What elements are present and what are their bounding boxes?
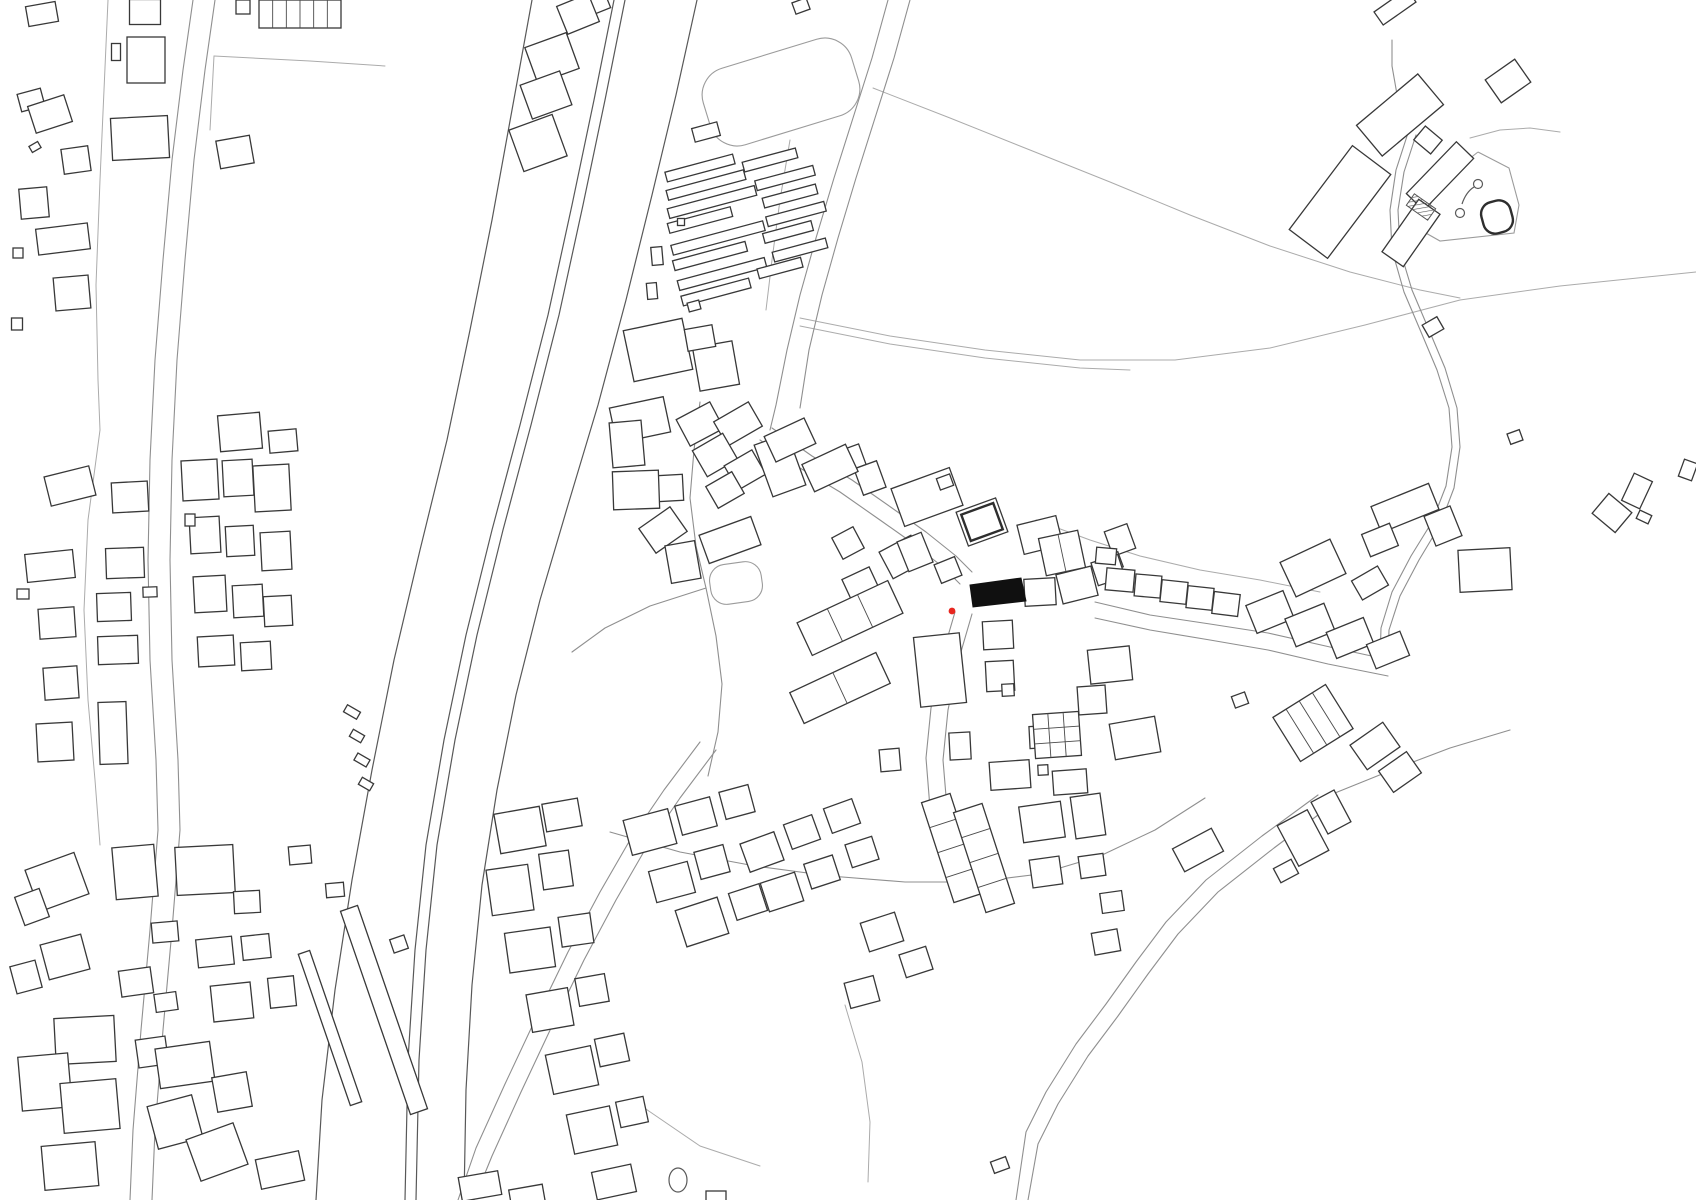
building-footprint: [358, 777, 373, 790]
building-footprint: [17, 589, 29, 599]
building-footprint: [1289, 146, 1391, 259]
building-footprint: [143, 587, 157, 597]
building-footprint: [509, 114, 567, 171]
building-footprint: [36, 722, 74, 762]
building-footprint: [1038, 765, 1049, 776]
building-footprint: [879, 748, 901, 772]
building-footprint: [1105, 568, 1135, 592]
building-footprint: [860, 912, 904, 952]
building-footprint: [509, 1184, 546, 1200]
building-footprint: [240, 641, 271, 671]
building-footprint: [989, 760, 1031, 791]
building-footprint: [61, 146, 91, 175]
river-bank-line: [416, 0, 625, 1200]
building-footprint: [665, 541, 701, 584]
building-footprint: [486, 864, 534, 915]
building-footprint: [1273, 859, 1298, 883]
building-footprint: [60, 1079, 120, 1134]
building-footprint: [832, 527, 864, 559]
building-footprint: [1352, 566, 1389, 600]
pond-outline: [669, 1168, 687, 1192]
building-footprint: [44, 466, 96, 506]
building-footprint: [1087, 646, 1132, 684]
building-footprint: [646, 283, 657, 300]
building-footprint: [268, 976, 297, 1009]
curved-wall-arc: [1462, 187, 1474, 204]
building-footprint: [10, 960, 42, 994]
building-footprint: [494, 806, 546, 853]
building-footprint: [740, 832, 784, 873]
building-footprint: [111, 481, 149, 513]
building-footprint: [40, 934, 90, 980]
building-footprint: [236, 0, 250, 14]
terraced-building: [1038, 530, 1085, 575]
building-footprint: [130, 0, 161, 25]
building-footprint: [678, 219, 685, 226]
site-plan-map: [0, 0, 1696, 1200]
building-footprint: [1374, 0, 1416, 25]
building-footprint: [1019, 801, 1066, 842]
building-footprint: [804, 855, 841, 889]
building-footprint: [255, 1151, 304, 1189]
courtyard-outline: [707, 560, 764, 607]
building-footprint: [684, 325, 715, 352]
building-footprint: [268, 429, 298, 453]
building-footprint: [233, 890, 260, 913]
round-structure: [1478, 198, 1515, 237]
terraced-building: [1033, 711, 1082, 758]
building-footprint: [675, 797, 718, 835]
building-footprint: [105, 547, 144, 578]
building-footprint: [1077, 685, 1107, 715]
building-footprint: [1285, 603, 1335, 647]
building-footprint: [520, 71, 572, 119]
building-footprint: [1507, 430, 1523, 445]
building-footprint: [110, 116, 169, 161]
building-footprint: [390, 935, 409, 953]
building-footprint: [845, 836, 879, 867]
building-footprint: [218, 412, 263, 452]
building-footprint: [241, 934, 271, 961]
building-footprint: [1485, 59, 1531, 103]
building-footprint: [12, 318, 23, 330]
building-footprint: [185, 514, 195, 526]
building-footprint: [154, 992, 178, 1013]
building-footprint: [719, 785, 755, 820]
building-footprint: [526, 988, 574, 1033]
terraced-building: [790, 653, 890, 724]
building-footprint: [990, 1157, 1009, 1174]
building-footprint: [197, 635, 235, 667]
building-footprint: [1134, 574, 1162, 598]
building-footprint: [354, 753, 370, 767]
building-footprint: [566, 1106, 617, 1154]
terraced-building: [1273, 685, 1353, 762]
highlighted-building-layer: [970, 578, 1026, 607]
building-footprint: [592, 1164, 637, 1200]
building-footprint: [260, 531, 292, 571]
building-footprint: [38, 607, 76, 639]
building-footprint: [616, 1096, 649, 1127]
building-footprint: [575, 974, 609, 1007]
building-footprint: [609, 420, 645, 468]
building-footprint: [1070, 793, 1106, 839]
site-marker-layer: [949, 608, 956, 615]
building-footprint: [253, 464, 291, 512]
road-line: [706, 588, 722, 776]
building-footprint: [325, 882, 344, 898]
building-footprint: [1172, 828, 1223, 872]
building-footprint: [1002, 684, 1015, 697]
building-footprint: [225, 525, 255, 556]
parcel-boundary-line: [210, 56, 214, 130]
building-footprint: [181, 459, 219, 501]
building-footprint: [212, 1072, 253, 1113]
building-footprint: [127, 37, 165, 83]
building-footprint: [196, 936, 235, 968]
building-footprint: [742, 148, 798, 172]
building-footprint: [594, 1033, 629, 1067]
building-footprint: [98, 702, 128, 765]
building-footprint: [216, 135, 254, 168]
building-footprint: [263, 595, 293, 626]
building-footprint: [545, 1046, 598, 1095]
red-site-marker-dot: [949, 608, 956, 615]
river-layer: [316, 0, 697, 1200]
building-footprint: [760, 872, 804, 912]
building-footprint: [1246, 591, 1294, 634]
building-footprint: [210, 982, 254, 1022]
building-footprint: [36, 223, 91, 255]
building-footprint: [112, 844, 158, 899]
building-footprint: [504, 927, 555, 973]
building-footprint: [934, 557, 962, 584]
courtyard-outline: [695, 31, 867, 153]
building-footprint: [25, 2, 58, 27]
building-footprint: [1366, 631, 1409, 669]
building-footprint: [699, 516, 761, 563]
building-footprint: [913, 633, 966, 707]
building-footprint: [98, 635, 139, 664]
building-footprint: [43, 666, 79, 700]
building-footprint: [112, 44, 121, 61]
building-footprint: [288, 845, 311, 865]
building-footprint: [1678, 459, 1696, 481]
building-footprint: [706, 1191, 726, 1200]
building-footprint: [542, 798, 582, 832]
site-plan-viewport: [0, 0, 1696, 1200]
building-footprint: [539, 850, 574, 890]
building-footprint: [118, 967, 153, 997]
tree-circle: [1456, 209, 1465, 218]
building-footprint: [899, 946, 933, 977]
highlighted-project-building: [970, 578, 1026, 607]
road-line: [1016, 795, 1318, 1200]
building-footprint: [1186, 586, 1214, 611]
building-footprint: [232, 584, 264, 618]
parcel-boundary-line: [214, 56, 385, 66]
building-footprint: [1091, 929, 1120, 955]
building-footprint: [1414, 126, 1442, 154]
building-footprint: [175, 845, 235, 896]
building-footprint: [344, 705, 361, 719]
building-footprint: [1100, 891, 1125, 914]
parcel-boundary-line: [800, 326, 1130, 370]
building-footprint: [1095, 547, 1116, 565]
building-footprint: [949, 732, 971, 760]
building-footprint: [558, 913, 594, 947]
building-footprint: [982, 620, 1013, 650]
road-line: [130, 0, 193, 1200]
building-footprint: [155, 1041, 215, 1088]
building-footprint: [656, 474, 683, 501]
parcel-boundary-line: [640, 1105, 760, 1166]
building-footprint: [649, 861, 696, 902]
terraced-building-outline: [1033, 711, 1082, 758]
building-footprint: [694, 845, 730, 880]
building-footprint: [97, 592, 132, 621]
river-bank-line: [316, 0, 532, 1200]
building-footprint: [612, 470, 659, 510]
building-footprint: [222, 459, 254, 497]
building-footprint: [792, 0, 810, 14]
building-footprint: [1109, 716, 1161, 759]
building-footprint: [1422, 317, 1444, 338]
building-footprint: [193, 575, 227, 613]
road-line: [572, 588, 706, 652]
building-footprint: [41, 1142, 99, 1191]
building-footprint: [1078, 853, 1106, 878]
building-footprint: [19, 187, 50, 219]
building-footprint: [823, 799, 860, 834]
building-footprint: [844, 976, 880, 1009]
building-footprint: [1029, 856, 1063, 888]
building-footprint: [1458, 548, 1512, 593]
building-footprint: [675, 897, 729, 947]
building-footprint: [13, 248, 23, 258]
building-footprint: [1280, 539, 1346, 597]
building-footprint: [1231, 692, 1248, 708]
building-footprint: [349, 729, 364, 742]
river-bank-line: [405, 0, 614, 1200]
parcel-boundary-line: [96, 0, 108, 430]
building-footprint: [557, 0, 600, 34]
building-footprint: [1024, 578, 1056, 607]
building-footprint: [1622, 473, 1653, 509]
roads-layer: [130, 0, 1510, 1200]
parcel-boundary-line: [1470, 128, 1560, 138]
buildings-layer: [10, 0, 1696, 1200]
building-footprint: [53, 275, 91, 311]
building-footprint: [1160, 580, 1188, 605]
building-footprint: [651, 247, 664, 266]
building-footprint: [1212, 591, 1240, 616]
building-footprint: [25, 550, 76, 583]
building-footprint: [29, 141, 41, 152]
building-footprint: [1326, 618, 1374, 659]
parcel-boundary-line: [800, 272, 1696, 360]
building-footprint: [1052, 769, 1088, 795]
building-footprint: [151, 921, 179, 943]
building-footprint: [623, 318, 693, 381]
tree-circle: [1474, 180, 1483, 189]
building-footprint: [298, 950, 361, 1105]
building-footprint: [783, 815, 820, 850]
building-footprint: [692, 122, 721, 142]
building-footprint: [891, 468, 963, 527]
parcel-boundary-line: [845, 1005, 870, 1182]
terraced-building: [259, 0, 341, 28]
building-footprint: [1636, 510, 1652, 524]
